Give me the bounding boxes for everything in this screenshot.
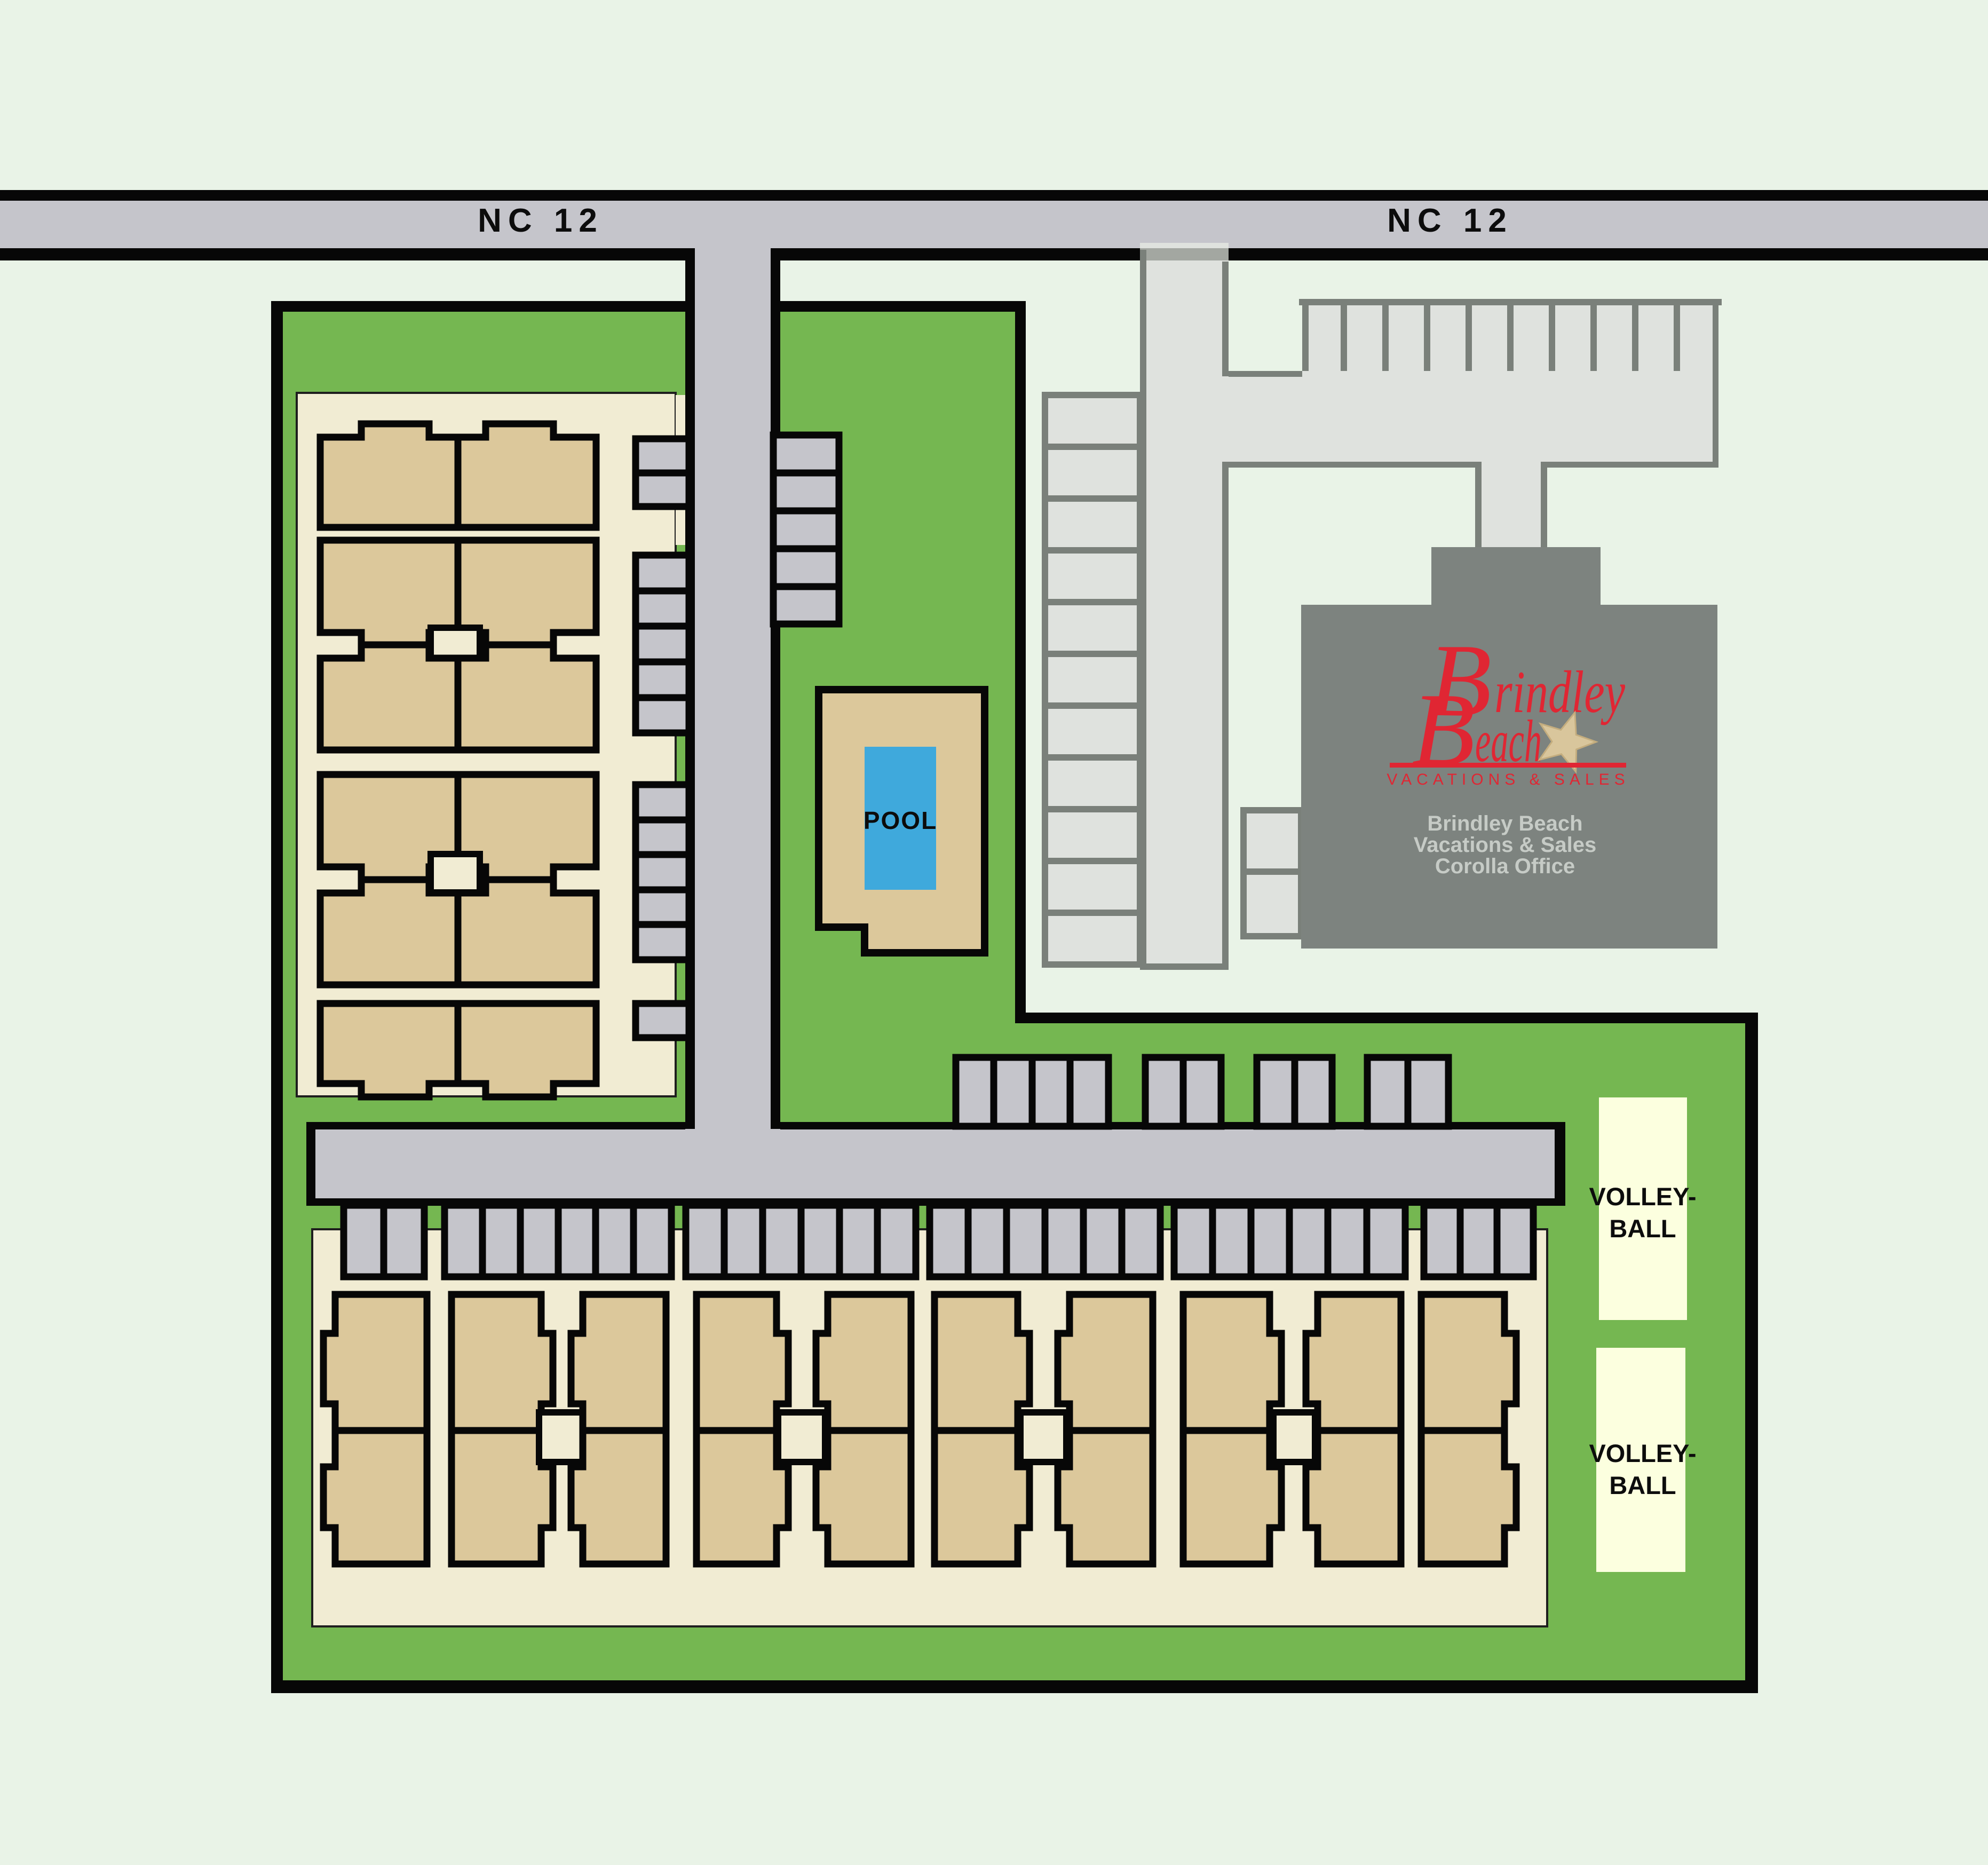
- svg-text:VACATIONS & SALES: VACATIONS & SALES: [1387, 771, 1629, 788]
- svg-text:NC 12: NC 12: [478, 202, 604, 239]
- svg-text:POOL: POOL: [864, 807, 937, 834]
- svg-text:Brindley BeachVacations & Sale: Brindley BeachVacations & SalesCorolla O…: [1414, 812, 1596, 878]
- svg-text:B: B: [1412, 672, 1475, 787]
- svg-text:NC 12: NC 12: [1387, 202, 1513, 239]
